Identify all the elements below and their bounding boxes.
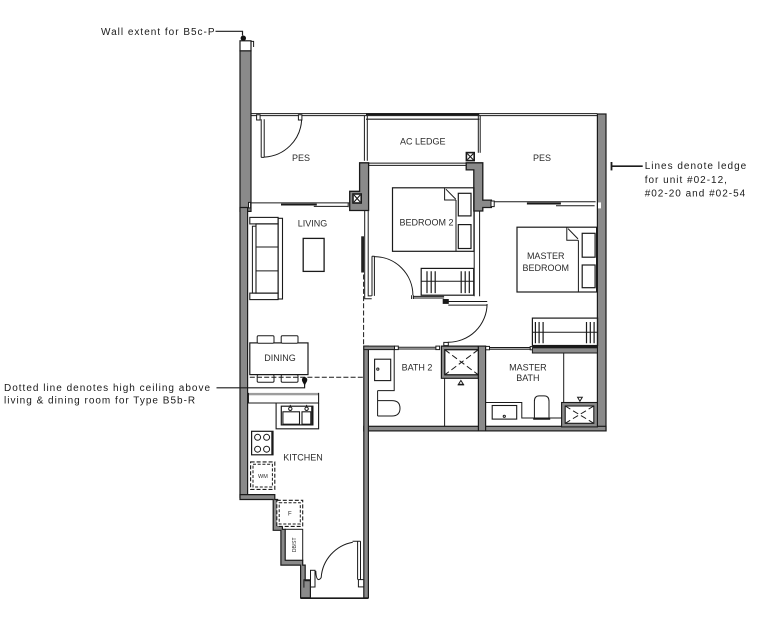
svg-text:living & dining room for Type: living & dining room for Type B5b-R — [4, 396, 196, 407]
svg-text:AC LEDGE: AC LEDGE — [400, 137, 446, 147]
svg-text:MASTER: MASTER — [527, 251, 565, 261]
svg-text:PES: PES — [292, 153, 310, 163]
svg-text:Lines denote ledge: Lines denote ledge — [645, 161, 748, 172]
svg-text:Dotted line denotes high ceili: Dotted line denotes high ceiling above — [4, 383, 211, 394]
svg-text:WM: WM — [258, 474, 268, 480]
svg-text:KITCHEN: KITCHEN — [283, 453, 323, 463]
svg-text:for unit #02-12,: for unit #02-12, — [645, 175, 728, 186]
svg-text:DINING: DINING — [264, 353, 296, 363]
svg-text:PES: PES — [533, 153, 551, 163]
svg-text:BEDROOM 2: BEDROOM 2 — [399, 217, 453, 227]
svg-text:MASTER: MASTER — [509, 362, 547, 372]
svg-text:LIVING: LIVING — [298, 219, 328, 229]
svg-text:BATH 2: BATH 2 — [402, 363, 433, 373]
svg-text:#02-20 and #02-54: #02-20 and #02-54 — [645, 188, 747, 199]
svg-text:Wall extent for B5c-P: Wall extent for B5c-P — [101, 27, 216, 38]
svg-text:DB/ST: DB/ST — [292, 537, 298, 552]
svg-text:BEDROOM: BEDROOM — [522, 263, 569, 273]
svg-text:F: F — [288, 512, 292, 518]
svg-text:BATH: BATH — [516, 373, 539, 383]
